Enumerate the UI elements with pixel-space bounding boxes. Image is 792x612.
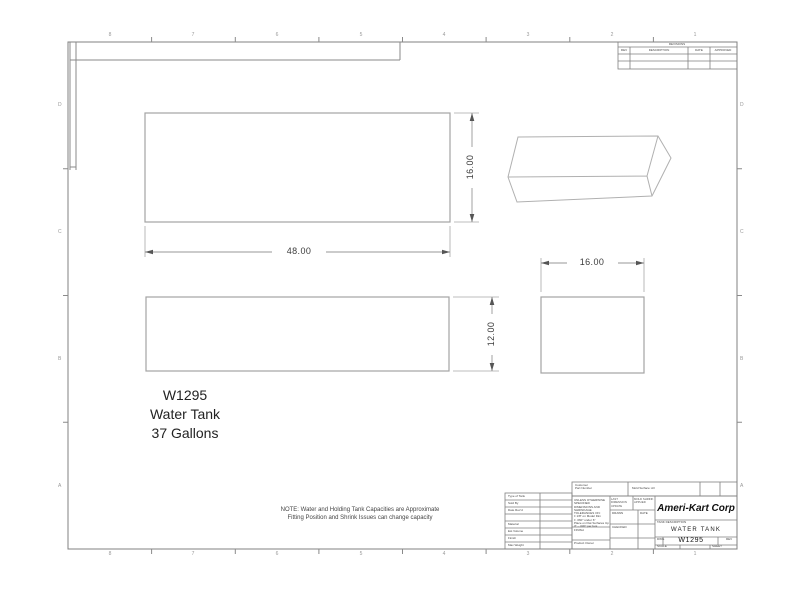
zone-col-label: 4 [443, 551, 446, 557]
drawing-sheet: 8 7 6 5 4 3 2 1 8 7 6 5 4 3 2 1 D C B A … [0, 0, 792, 612]
zone-col-label: 2 [611, 551, 614, 557]
zone-col-label: 8 [109, 32, 112, 38]
date-label: DATE [640, 512, 648, 515]
note-line-1: NOTE: Water and Holding Tank Capacities … [281, 507, 440, 515]
drawing-title: WATER TANK [671, 527, 721, 533]
isometric-view [508, 136, 671, 202]
product-owner-label: Product Owner [574, 542, 594, 545]
sign-header-2: MOLD SHRINK APPLIED [634, 498, 654, 505]
size-label: DWG [657, 538, 664, 541]
finish-label: FINISH [574, 529, 584, 532]
field-label-max-weight: Max Weight [508, 544, 524, 547]
zone-col-label: 6 [276, 32, 279, 38]
zone-row-label: B [740, 356, 743, 362]
extension-lines [145, 113, 644, 371]
zone-col-label: 7 [192, 32, 195, 38]
zone-col-label: 7 [192, 551, 195, 557]
part-number-label: Part Number [575, 487, 592, 490]
dim-top-view-depth: 16.00 [465, 155, 475, 180]
drawing-number: W1295 [678, 537, 703, 544]
zone-col-label: 3 [527, 32, 530, 38]
zone-row-label: A [58, 483, 61, 489]
customer-part-number-cell: Customer Part Number [575, 484, 592, 491]
zone-row-label: D [740, 102, 744, 108]
zone-ticks [63, 37, 742, 554]
dim-top-view-width: 48.00 [287, 246, 312, 256]
capacity-note: NOTE: Water and Holding Tank Capacities … [281, 507, 440, 522]
zone-col-label: 2 [611, 32, 614, 38]
top-view-outline [145, 113, 450, 222]
dimension-lines [145, 113, 644, 371]
approved-col-header: APPROVED [715, 49, 732, 52]
field-label-type-of-tank: Type of Tank [508, 495, 525, 498]
field-label-finish: Finish [508, 537, 516, 540]
field-label-est-volume: Est Volume [508, 530, 523, 533]
mold-surface-label: Mold Surface: All [632, 487, 655, 490]
zone-col-label: 1 [694, 551, 697, 557]
field-label-material: Material [508, 523, 519, 526]
zone-col-label: 6 [276, 551, 279, 557]
dim-end-view-width: 16.00 [580, 257, 605, 267]
zone-row-label: D [58, 102, 62, 108]
end-view-outline [541, 297, 644, 373]
dim-side-view-height: 12.00 [486, 322, 496, 347]
part-name-text: Water Tank [150, 405, 220, 424]
side-view-outline [146, 297, 449, 371]
tolerance-notes: UNLESS OTHERWISE SPECIFIED DIMENSIONS AN… [574, 499, 609, 529]
zone-col-label: 5 [360, 551, 363, 557]
scale-label: SCALE [657, 545, 667, 548]
margin-strip [70, 42, 400, 170]
zone-row-label: B [58, 356, 61, 362]
rev-col-header: REV [621, 49, 627, 52]
field-label-sold-by: Sold By [508, 502, 518, 505]
zone-col-label: 1 [694, 32, 697, 38]
dimension-arrows [145, 113, 644, 371]
zone-col-label: 3 [527, 551, 530, 557]
sign-header-1: LAST DIMENSION UPDATE [611, 498, 632, 508]
part-number-text: W1295 [150, 386, 220, 405]
rev-label: REV [726, 538, 732, 541]
field-label-date-recd: Date Rec'd [508, 509, 523, 512]
zone-col-label: 8 [109, 551, 112, 557]
sheet-border [68, 42, 737, 549]
description-col-header: DESCRIPTION [649, 49, 670, 52]
drawing-title-label: TANK DESCRIPTION [657, 521, 686, 524]
zone-col-label: 4 [443, 32, 446, 38]
note-line-2: Fitting Position and Shrink Issues can c… [281, 515, 440, 523]
zone-col-label: 5 [360, 32, 363, 38]
company-name: Ameri-Kart Corp [657, 503, 735, 514]
revisions-title: REVISIONS [669, 43, 685, 46]
drawn-label: DRAWN [612, 512, 623, 515]
zone-row-label: C [58, 229, 62, 235]
zone-row-label: A [740, 483, 743, 489]
sheet-label: SHEET [712, 545, 722, 548]
part-capacity-text: 37 Gallons [150, 424, 220, 443]
checked-label: CHECKED [612, 526, 627, 529]
date-col-header: DATE [695, 49, 703, 52]
part-id-block: W1295 Water Tank 37 Gallons [150, 386, 220, 443]
zone-row-label: C [740, 229, 744, 235]
